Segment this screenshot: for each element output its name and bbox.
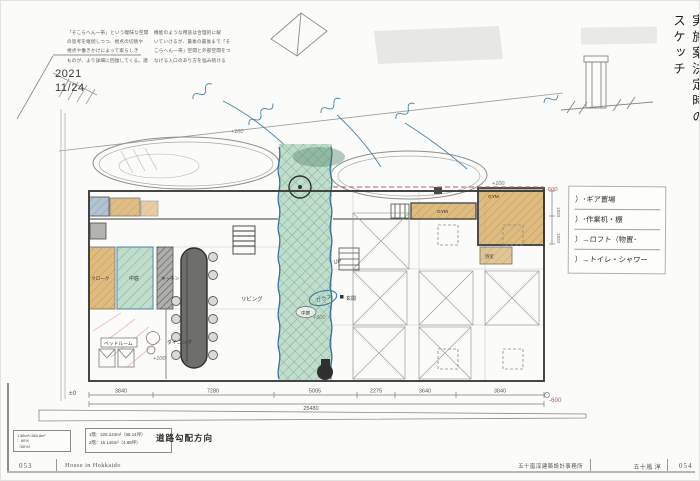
- tan-box-2: [141, 201, 158, 216]
- footer-divider: [590, 459, 591, 471]
- note-item: ）→トイレ・シャワー: [574, 250, 661, 270]
- intro-line: いていけるが、最後の最後まで「そ: [154, 37, 231, 46]
- bath-box-blue: [89, 197, 109, 216]
- dim-3840-a: 3840: [115, 389, 127, 395]
- note-item: ）･作業机・棚: [574, 210, 662, 231]
- entrance-label: 玄関: [346, 295, 356, 302]
- intro-line: こらへん一帯」空間と外部空間をつ: [154, 46, 231, 55]
- corner-section-sketch: [271, 13, 327, 56]
- road-direction-label: 道路勾配方向: [156, 432, 213, 444]
- courtyard-label: 中庭: [129, 275, 139, 282]
- intro-line: の思考を継続しつつ、視点の切替や: [67, 37, 149, 46]
- rdim-1: 1820: [556, 207, 561, 218]
- level-zero: ±0: [69, 390, 77, 397]
- dim-2275: 2275: [370, 389, 382, 395]
- kitchen-label: キッチン: [161, 276, 180, 281]
- page-number-right: 054: [679, 462, 693, 470]
- gray-tone-slabs: [374, 26, 657, 64]
- intro-line: 「そこらへん一帯」という曖昧な空間: [67, 28, 149, 37]
- page-bottom-shadow: [7, 471, 695, 473]
- road-slope-wedge: [39, 410, 586, 421]
- tan-box-1: [110, 198, 140, 216]
- note-item: ）･ギア置場: [574, 190, 662, 211]
- skylight-circle-dot: [298, 185, 302, 189]
- bath-label: 浴室: [485, 253, 494, 260]
- date-day: 11/24: [55, 81, 85, 95]
- intro-line: なげる入口のあり方を悩み続ける: [154, 56, 231, 65]
- bedroom-label-box: ベッドルーム: [101, 338, 137, 347]
- page-side-title: 実施案決定時のスケッチ: [669, 14, 700, 134]
- site-boundary-line: [59, 93, 563, 151]
- gym-label-2: GYM: [488, 194, 499, 200]
- area-info-box-1: 1.88m²=383.8m² ：60% （50%）: [13, 430, 71, 452]
- dim-3840-b: 3840: [494, 389, 506, 395]
- dim-7280: 7280: [207, 389, 219, 395]
- stairs-entry: [339, 204, 409, 270]
- level-plus100-c: +100: [313, 315, 326, 321]
- kitchen-counter-table: [172, 248, 218, 368]
- architect-name: 五十嵐 淳: [599, 462, 661, 471]
- work-title: House in Hokkaido: [65, 462, 121, 469]
- tower-sketch-right-page: [561, 56, 653, 114]
- level-plus100-b: +100: [492, 181, 505, 187]
- area-line: （50%）: [17, 444, 67, 449]
- dining-label: ダイニング: [167, 339, 192, 346]
- level-minus600-bottom: -600: [549, 397, 562, 404]
- right-dimension-line: [549, 191, 555, 244]
- gym-label-1: GYM: [437, 209, 448, 215]
- page-number-left: 053: [19, 462, 33, 470]
- intro-line: 機能のような用途は合理的に解: [154, 28, 231, 37]
- wc-box: [90, 223, 106, 239]
- intro-line: ものが、より詳細に回復してくる。諸: [67, 56, 149, 65]
- date-year: 2021: [55, 67, 85, 81]
- page-spine-shadow: [7, 383, 9, 473]
- courtyard-small-label: 中庭: [301, 310, 311, 317]
- intro-column-2: 機能のような用途は合理的に解 いていけるが、最後の最後まで「そ こらへん一帯」空…: [154, 28, 231, 65]
- level-plus100-a: +100: [231, 129, 244, 135]
- book-spread-page: クローク 中庭 キッチン ダイニング リビング 玄関 GYM GYM 浴室 ベッ…: [0, 0, 700, 481]
- living-label: リビング: [241, 295, 263, 303]
- footer-divider: [56, 459, 57, 471]
- note-item: ）→ロフト（物置･: [574, 230, 662, 251]
- firm-name: 五十嵐淳建築設計事務所: [499, 462, 583, 470]
- stairs-top: [233, 226, 255, 254]
- dim-total: 25480: [303, 406, 318, 412]
- handwritten-notes-card: ）･ギア置場 ）･作業机・棚 ）→ロフト（物置･ ）→トイレ・シャワー: [568, 186, 667, 275]
- date-block: 2021 11/24: [55, 67, 85, 95]
- intro-column-1: 「そこらへん一帯」という曖昧な空間 の思考を継続しつつ、視点の切替や 視点や働き…: [67, 28, 149, 65]
- bedroom-label: ベッドルーム: [104, 341, 133, 347]
- dim-5005: 5005: [309, 389, 321, 395]
- handwritten-annotation-squiggles: [191, 82, 559, 169]
- site-edge-left: [61, 109, 65, 401]
- bedroom-furniture: [99, 332, 160, 368]
- intro-line: 視点や働きかけによって家らしき: [67, 46, 149, 55]
- level-plus100-d: +100: [153, 356, 166, 362]
- door-mark: [434, 187, 442, 194]
- rdim-2: 1820: [556, 233, 561, 244]
- footer-divider: [667, 459, 668, 471]
- dim-3640: 3640: [419, 389, 431, 395]
